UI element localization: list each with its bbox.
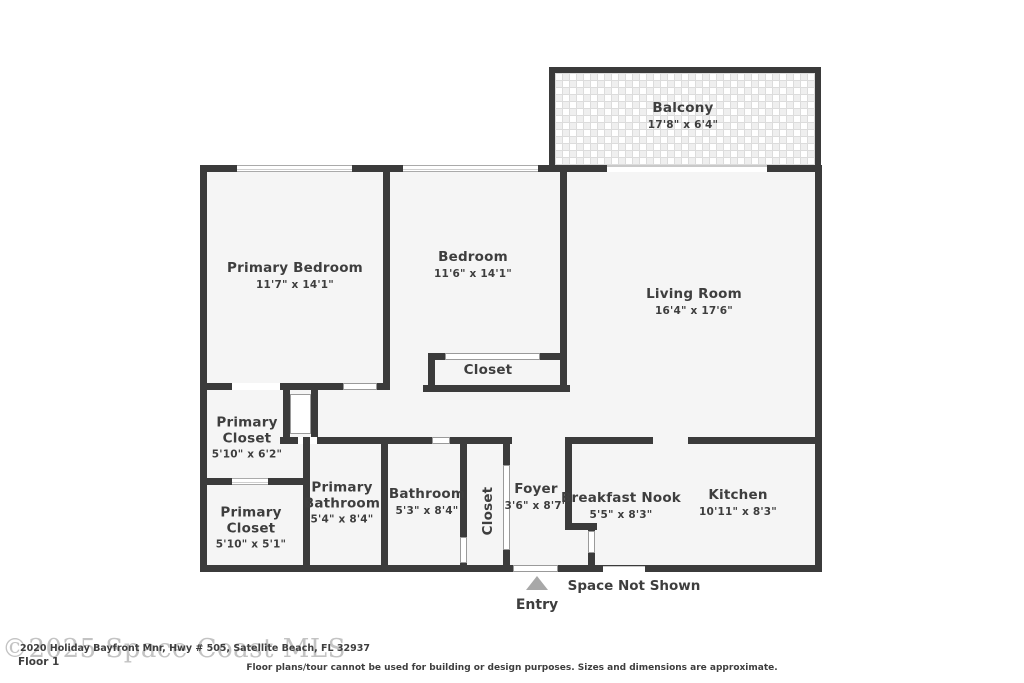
wall bbox=[383, 165, 390, 390]
room-dims: 5'4" x 8'4" bbox=[292, 513, 392, 525]
door-opening bbox=[232, 383, 280, 390]
wall bbox=[815, 67, 821, 172]
room-label-breakfast-nook: Breakfast Nook 5'5" x 8'3" bbox=[561, 491, 681, 521]
room-dims: 3'6" x 8'7" bbox=[505, 500, 568, 512]
door bbox=[343, 383, 377, 390]
wall bbox=[423, 385, 570, 392]
door bbox=[460, 537, 467, 563]
room-label-bathroom: Bathroom 5'3" x 8'4" bbox=[389, 487, 465, 517]
sliding-door bbox=[607, 165, 767, 172]
room-label-hall-closet: Closet bbox=[481, 487, 497, 536]
room-label-balcony: Balcony 17'8" x 6'4" bbox=[648, 101, 718, 131]
room-name: Bedroom bbox=[434, 250, 512, 266]
room-name: Living Room bbox=[646, 287, 742, 303]
room-dims: 16'4" x 17'6" bbox=[646, 305, 742, 317]
room-label-closet: Closet bbox=[464, 363, 513, 379]
wall bbox=[200, 565, 822, 572]
room-name: Foyer bbox=[505, 482, 568, 498]
room-name: Primary Bedroom bbox=[227, 261, 363, 277]
wall bbox=[200, 165, 207, 572]
room-label-foyer: Foyer 3'6" x 8'7" bbox=[505, 482, 568, 512]
wall bbox=[549, 67, 821, 73]
room-dims: 17'8" x 6'4" bbox=[648, 119, 718, 131]
room-name: Closet bbox=[481, 487, 497, 536]
room-dims: 5'3" x 8'4" bbox=[389, 505, 465, 517]
room-label-primary-closet-upper: Primary Closet 5'10" x 6'2" bbox=[205, 415, 289, 460]
room-name: Bathroom bbox=[389, 487, 465, 503]
room-dims: 5'5" x 8'3" bbox=[561, 509, 681, 521]
room-dims: 11'7" x 14'1" bbox=[227, 279, 363, 291]
room-label-primary-bathroom: Primary Bathroom 5'4" x 8'4" bbox=[292, 480, 392, 525]
entry-door-opening bbox=[513, 565, 558, 572]
room-name: Balcony bbox=[648, 101, 718, 117]
wall-opening bbox=[603, 566, 645, 573]
room-label-bedroom: Bedroom 11'6" x 14'1" bbox=[434, 250, 512, 280]
room-label-living-room: Living Room 16'4" x 17'6" bbox=[646, 287, 742, 317]
room-name: Breakfast Nook bbox=[561, 491, 681, 507]
closet-door bbox=[445, 353, 540, 360]
wall bbox=[565, 437, 653, 444]
room-name: Closet bbox=[464, 363, 513, 379]
closet-door bbox=[232, 478, 268, 485]
wall bbox=[549, 67, 555, 172]
entry-arrow-icon bbox=[526, 576, 548, 590]
room-label-kitchen: Kitchen 10'11" x 8'3" bbox=[699, 488, 777, 518]
room-name: Primary Bathroom bbox=[292, 480, 392, 511]
room-dims: 11'6" x 14'1" bbox=[434, 268, 512, 280]
room-name: Primary Closet bbox=[209, 505, 293, 536]
listing-address: 2020 Holiday Bayfront Mnr, Hwy # 505, Sa… bbox=[20, 643, 370, 654]
door bbox=[588, 531, 595, 553]
window bbox=[237, 165, 352, 172]
floorplan-canvas: Balcony 17'8" x 6'4" Primary Bedroom 11'… bbox=[0, 0, 1024, 683]
room-label-primary-closet-lower: Primary Closet 5'10" x 5'1" bbox=[209, 505, 293, 550]
room-dims: 10'11" x 8'3" bbox=[699, 506, 777, 518]
entry-label: Entry bbox=[516, 597, 558, 613]
room-name: Primary Closet bbox=[205, 415, 289, 446]
disclaimer-text: Floor plans/tour cannot be used for buil… bbox=[0, 663, 1024, 673]
door bbox=[290, 394, 311, 434]
room-dims: 5'10" x 6'2" bbox=[205, 448, 289, 460]
wall bbox=[815, 165, 822, 572]
door bbox=[432, 437, 450, 444]
window bbox=[403, 165, 538, 172]
room-name: Kitchen bbox=[699, 488, 777, 504]
room-dims: 5'10" x 5'1" bbox=[209, 538, 293, 550]
wall bbox=[311, 390, 318, 437]
wall bbox=[688, 437, 822, 444]
room-label-primary-bedroom: Primary Bedroom 11'7" x 14'1" bbox=[227, 261, 363, 291]
space-not-shown-label: Space Not Shown bbox=[568, 578, 701, 594]
